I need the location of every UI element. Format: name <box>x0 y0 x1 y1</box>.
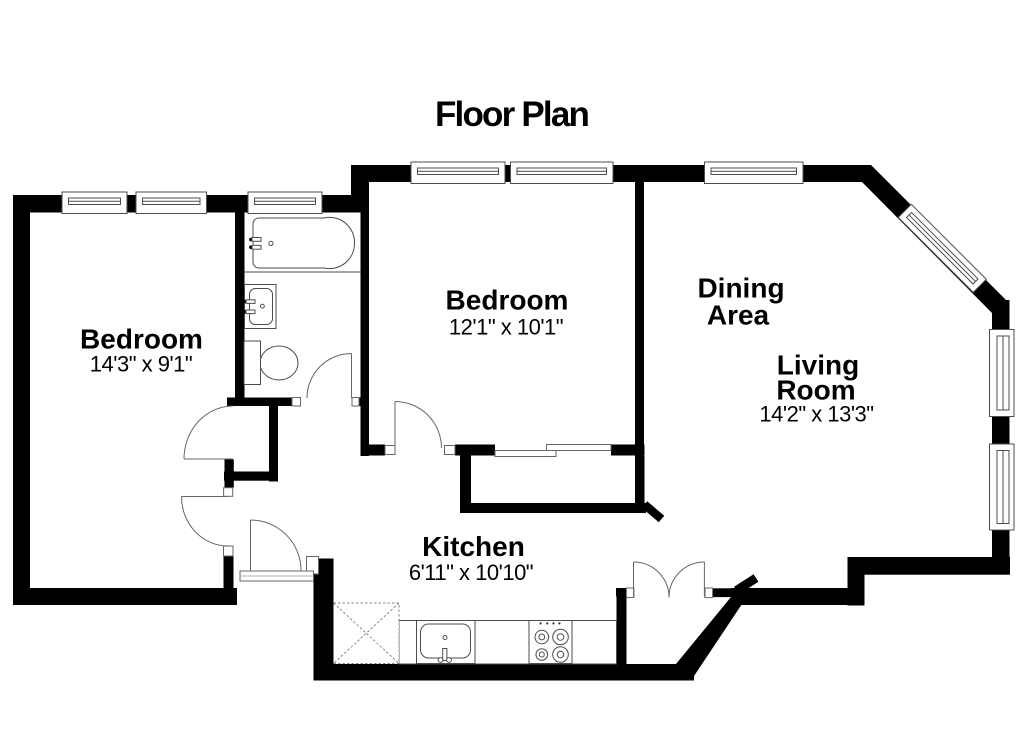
svg-text:Kitchen: Kitchen <box>422 531 525 562</box>
svg-text:Area: Area <box>707 300 770 331</box>
svg-text:Bedroom: Bedroom <box>446 285 569 316</box>
svg-text:Floor Plan: Floor Plan <box>435 95 589 134</box>
svg-text:14'2" x 13'3": 14'2" x 13'3" <box>759 402 873 427</box>
svg-text:6'11" x 10'10": 6'11" x 10'10" <box>409 560 533 585</box>
svg-text:Bedroom: Bedroom <box>80 324 203 355</box>
svg-text:12'1" x 10'1": 12'1" x 10'1" <box>449 315 563 340</box>
svg-text:14'3" x 9'1": 14'3" x 9'1" <box>90 352 192 377</box>
